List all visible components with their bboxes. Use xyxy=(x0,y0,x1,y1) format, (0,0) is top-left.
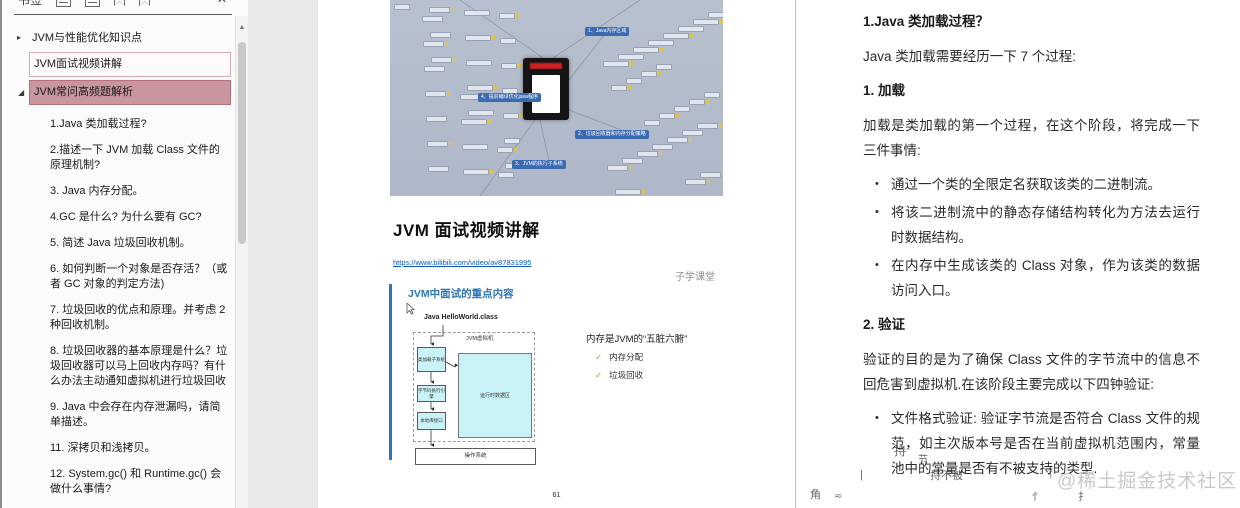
juejin-watermark: @稀土掘金技术社区 xyxy=(1057,466,1237,493)
check-label: 垃圾回收 xyxy=(609,370,643,380)
bookmark-label: JVM与性能优化知识点 xyxy=(32,32,142,44)
mindmap-image: 1、Java内存区域 2、垃圾回收器和内存分配策略 3、JVM的执行子系统 4、… xyxy=(390,0,723,196)
bookmark-child[interactable]: 5. 简述 Java 垃圾回收机制。 xyxy=(50,236,229,251)
bullet-list: 通过一个类的全限定名获取该类的二进制流。 将该二进制流中的静态存储结构转化为方法… xyxy=(863,172,1200,303)
step-heading: 1. 加载 xyxy=(863,78,1200,103)
bookmark-item-jvm-faq[interactable]: ◢ JVM常问高频题解析 xyxy=(29,80,231,105)
bullet-item: 将该二进制流中的静态存储结构转化为方法去运行时数据结构。 xyxy=(891,200,1200,250)
render-artifact: 节 xyxy=(918,451,928,466)
expand-bookmarks-icon[interactable] xyxy=(56,0,71,7)
question-heading: 1.Java 类加载过程？ xyxy=(863,9,1200,34)
check-icon: ✓ xyxy=(595,352,602,362)
mouse-cursor-icon xyxy=(406,303,415,315)
document-page-right: 1.Java 类加载过程？ Java 类加载需要经历一下 7 个过程: 1. 加… xyxy=(795,0,1240,508)
native-interface-box: 本地库接口 xyxy=(417,412,446,430)
bookmark-child[interactable]: 6. 如何判断一个对象是否存活？（或者 GC 对象的判定方法) xyxy=(50,262,229,292)
bookmark-children: 1.Java 类加载过程? 2.描述一下 JVM 加载 Class 文件的原理机… xyxy=(2,117,235,508)
paragraph: Java 类加载需要经历一下 7 个过程: xyxy=(863,44,1200,69)
render-artifact: 持 xyxy=(894,442,906,459)
mindmap-center-node xyxy=(523,58,569,120)
bookmark-child[interactable]: 7. 垃圾回收的优点和原理。并考虑 2 种回收机制。 xyxy=(50,303,229,333)
mindmap-branch-label: 3、JVM的执行子系统 xyxy=(512,160,566,169)
bookmark-child[interactable]: 11. 深拷贝和浅拷贝。 xyxy=(50,441,229,456)
render-artifact: ≂ xyxy=(834,491,842,502)
section-heading: JVM 面试视频讲解 xyxy=(393,216,540,241)
check-item: ✓内存分配 xyxy=(595,351,643,363)
close-panel-icon[interactable]: ✕ xyxy=(217,0,227,6)
bookmark-child[interactable]: 8. 垃圾回收器的基本原理是什么？垃圾回收器可以马上回收内存吗？有什么办法主动通… xyxy=(50,344,229,389)
expand-arrow-icon[interactable]: ◢ xyxy=(18,85,24,100)
mindmap-branch-label: 1、Java内存区域 xyxy=(585,27,629,36)
collapse-arrow-icon[interactable]: ▸ xyxy=(17,31,21,45)
brand-watermark: 子学课堂 xyxy=(675,268,715,283)
render-artifact: 角 xyxy=(810,486,821,502)
paragraph: 验证的目的是为了确保 Class 文件的字节流中的信息不回危害到虚拟机.在该阶段… xyxy=(863,347,1200,397)
bookmark-options-icon[interactable] xyxy=(139,0,150,6)
check-label: 内存分配 xyxy=(609,352,643,362)
page-number: 61 xyxy=(318,490,795,499)
render-artifact: 持不被 xyxy=(930,467,963,483)
bookmark-tree: ▸ JVM与性能优化知识点 JVM面试视频讲解 ◢ JVM常问高频题解析 1.J… xyxy=(2,16,235,508)
render-artifact: | xyxy=(860,469,863,481)
document-page-left: 1、Java内存区域 2、垃圾回收器和内存分配策略 3、JVM的执行子系统 4、… xyxy=(318,0,795,508)
class-file-label: Java HelloWorld.class xyxy=(424,314,498,321)
scrollbar-thumb[interactable] xyxy=(238,42,246,244)
bookmark-child[interactable]: 1.Java 类加载过程? xyxy=(50,117,229,132)
bookmark-label: JVM面试视频讲解 xyxy=(34,58,122,70)
render-artifact: 亻 xyxy=(1048,468,1057,481)
check-item: ✓垃圾回收 xyxy=(595,369,643,381)
mindmap-center-title xyxy=(530,63,562,69)
mindmap-branch-label: 2、垃圾回收器和内存分配策略 xyxy=(575,130,649,139)
bookmark-child[interactable]: 3. Java 内存分配。 xyxy=(50,184,229,199)
paragraph: 加载是类加载的第一个过程，在这个阶段，将完成一下三件事情: xyxy=(863,113,1200,163)
bookmarks-panel-title: 书签 xyxy=(18,0,42,8)
bytecode-engine-box: 字节码执行引擎 xyxy=(417,385,446,402)
bookmark-item-jvm-performance[interactable]: ▸ JVM与性能优化知识点 xyxy=(2,26,235,50)
bookmarks-toolbar: 书签 ✕ xyxy=(2,0,235,13)
jvm-box-label: JVM虚拟机 xyxy=(466,334,494,342)
runtime-data-area-box: 运行时数据区 xyxy=(458,353,532,438)
slide-accent-bar xyxy=(389,284,392,460)
mindmap-branch-label: 4、提前编译优化java程序 xyxy=(478,93,541,102)
render-artifact: 忄 xyxy=(1032,488,1042,503)
bookmark-child[interactable]: 12. System.gc() 和 Runtime.gc() 会做什么事情? xyxy=(50,467,229,497)
bullet-item: 通过一个类的全限定名获取该类的二进制流。 xyxy=(891,172,1200,197)
add-bookmark-icon[interactable] xyxy=(114,0,125,6)
page-text-column: 1.Java 类加载过程？ Java 类加载需要经历一下 7 个过程: 1. 加… xyxy=(863,0,1200,490)
pdf-reader-window: 书签 ✕ ▸ JVM与性能优化知识点 JVM面试视频讲解 ◢ JVM常问高频题解… xyxy=(0,0,1240,508)
bookmark-child[interactable]: 2.描述一下 JVM 加载 Class 文件的原理机制? xyxy=(50,143,229,173)
bookmark-child[interactable]: 9. Java 中会存在内存泄漏吗，请简单描述。 xyxy=(50,400,229,430)
bookmark-item-jvm-video[interactable]: JVM面试视频讲解 xyxy=(29,52,231,77)
check-icon: ✓ xyxy=(595,370,602,380)
bookmarks-panel: 书签 ✕ ▸ JVM与性能优化知识点 JVM面试视频讲解 ◢ JVM常问高频题解… xyxy=(0,0,248,508)
classloader-box: 类加载子系统 xyxy=(417,347,446,372)
panel-divider xyxy=(14,14,232,15)
bullet-item: 在内存中生成该类的 Class 对象，作为该类的数据访问入口。 xyxy=(891,253,1200,303)
step-heading: 2. 验证 xyxy=(863,312,1200,337)
slide-note-title: 内存是JVM的“五脏六腑” xyxy=(586,331,687,345)
operating-system-box: 操作系统 xyxy=(415,448,536,465)
bookmark-label: JVM常问高频题解析 xyxy=(34,86,133,98)
sidebar-scrollbar[interactable]: ▲ xyxy=(235,16,248,508)
bilibili-link[interactable]: https://www.bilibili.com/video/av8783199… xyxy=(393,258,531,267)
collapse-bookmarks-icon[interactable] xyxy=(85,0,100,7)
slide-title: JVM中面试的重点内容 xyxy=(408,286,514,301)
bookmark-child[interactable]: 4.GC 是什么? 为什么要有 GC? xyxy=(50,210,229,225)
scroll-up-icon[interactable]: ▲ xyxy=(236,24,248,31)
